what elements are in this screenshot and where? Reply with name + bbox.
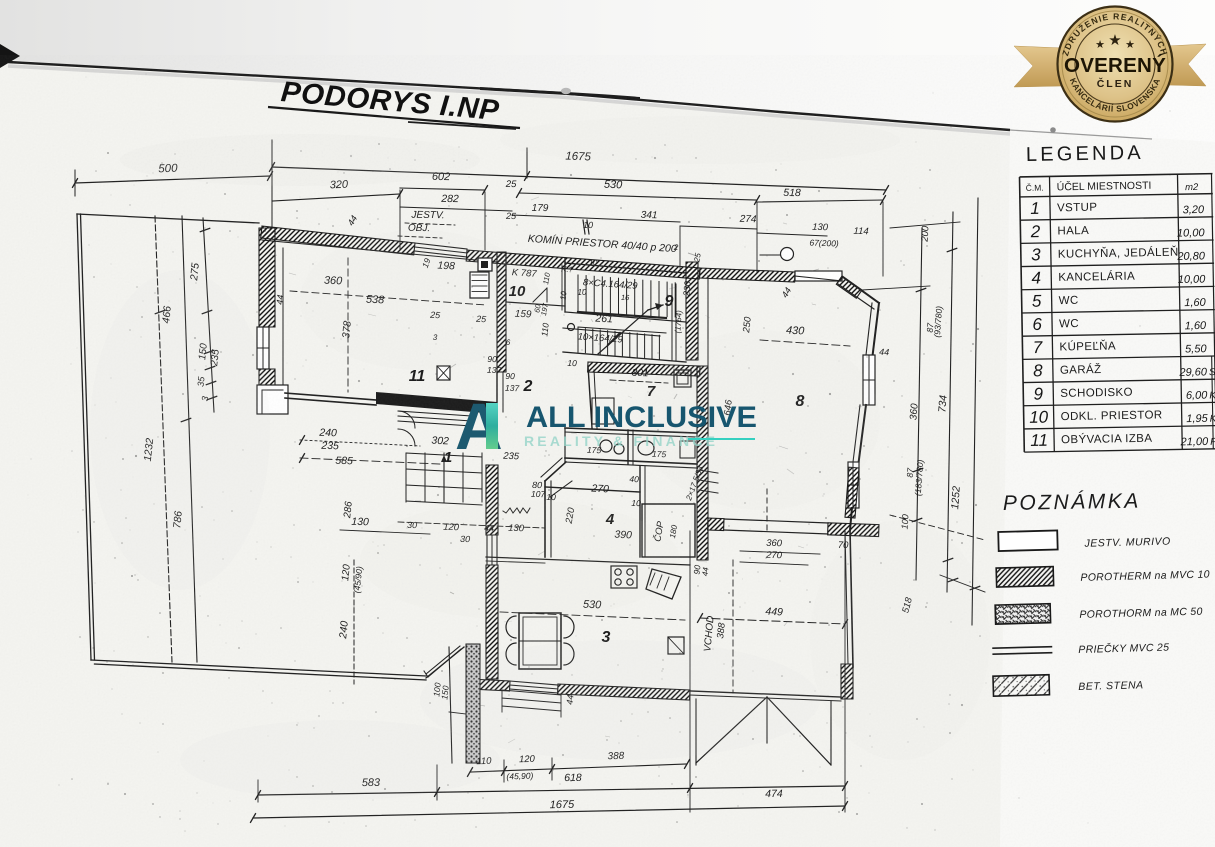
svg-text:2: 2: [1030, 222, 1041, 241]
svg-text:1,60: 1,60: [1185, 320, 1207, 332]
svg-text:ÚČEL MIESTNOSTI: ÚČEL MIESTNOSTI: [1057, 179, 1152, 194]
svg-text:JESTV. MURIVO: JESTV. MURIVO: [1083, 536, 1171, 550]
svg-text:10: 10: [1029, 408, 1049, 427]
svg-text:8: 8: [1033, 361, 1043, 380]
svg-text:3: 3: [1031, 245, 1041, 264]
svg-text:29,60: 29,60: [1178, 366, 1208, 379]
svg-text:21,00: 21,00: [1180, 436, 1210, 449]
svg-text:WC: WC: [1059, 295, 1079, 307]
svg-text:KÚPEĽŇA: KÚPEĽŇA: [1059, 340, 1116, 354]
svg-text:SCHODISKO: SCHODISKO: [1060, 387, 1133, 400]
svg-text:VSTUP: VSTUP: [1057, 202, 1098, 215]
svg-text:KANCELÁRIA: KANCELÁRIA: [1058, 270, 1135, 284]
svg-text:11: 11: [1030, 431, 1048, 450]
svg-text:★: ★: [1095, 39, 1105, 51]
svg-text:1: 1: [1030, 199, 1040, 218]
svg-text:4: 4: [1031, 268, 1041, 287]
svg-text:PRIEČKY MVC 25: PRIEČKY MVC 25: [1078, 641, 1169, 656]
svg-text:REALITY & FINANCE: REALITY & FINANCE: [524, 433, 718, 449]
svg-text:WC: WC: [1059, 318, 1079, 330]
svg-text:5,50: 5,50: [1185, 343, 1207, 355]
svg-text:ČLEN: ČLEN: [1097, 77, 1134, 90]
svg-text:KUCHYŇA, JEDÁLEŇ: KUCHYŇA, JEDÁLEŇ: [1058, 246, 1179, 261]
svg-text:10,00: 10,00: [1177, 227, 1206, 239]
svg-text:10,00: 10,00: [1178, 274, 1207, 286]
svg-text:OVERENÝ: OVERENÝ: [1064, 53, 1166, 77]
svg-text:1,95: 1,95: [1186, 413, 1208, 425]
svg-text:7: 7: [1033, 338, 1043, 357]
svg-text:6: 6: [1032, 315, 1042, 334]
svg-text:9: 9: [1033, 384, 1043, 403]
svg-text:HALA: HALA: [1057, 225, 1089, 238]
svg-text:20,80: 20,80: [1176, 250, 1206, 263]
svg-text:★: ★: [1108, 32, 1121, 49]
svg-text:m2: m2: [1185, 182, 1199, 193]
svg-text:1,60: 1,60: [1184, 297, 1206, 309]
svg-text:PA: PA: [1210, 437, 1215, 448]
svg-text:★: ★: [1125, 39, 1135, 51]
svg-text:GARÁŽ: GARÁŽ: [1060, 363, 1102, 377]
svg-text:ODKL. PRIESTOR: ODKL. PRIESTOR: [1061, 409, 1163, 423]
svg-text:OBÝVACIA IZBA: OBÝVACIA IZBA: [1061, 432, 1152, 447]
svg-text:BET. STENA: BET. STENA: [1078, 679, 1144, 693]
svg-text:3,20: 3,20: [1183, 204, 1205, 216]
svg-text:POZNÁMKA: POZNÁMKA: [1003, 490, 1141, 515]
svg-text:6,00: 6,00: [1186, 390, 1208, 402]
svg-text:5: 5: [1032, 292, 1042, 311]
svg-text:ALL INCLUSIVE: ALL INCLUSIVE: [526, 401, 757, 434]
svg-text:LEGENDA: LEGENDA: [1026, 142, 1144, 166]
svg-text:Č.M.: Č.M.: [1026, 183, 1044, 193]
